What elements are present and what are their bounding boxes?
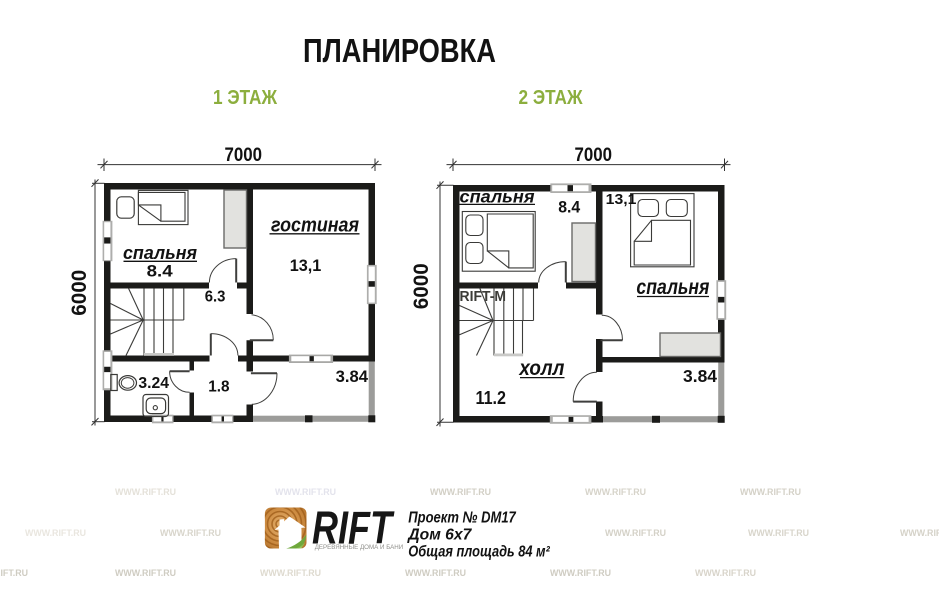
svg-text:WWW.RIFT.RU: WWW.RIFT.RU [115, 568, 176, 579]
svg-text:WWW.RIFT.RU: WWW.RIFT.RU [585, 487, 646, 498]
svg-text:WWW.RIFT.RU: WWW.RIFT.RU [430, 487, 491, 498]
svg-text:WWW.RIFT.RU: WWW.RIFT.RU [260, 568, 321, 579]
svg-text:7000: 7000 [225, 144, 263, 166]
svg-text:6000: 6000 [410, 263, 433, 309]
svg-text:1 ЭТАЖ: 1 ЭТАЖ [213, 87, 278, 109]
svg-text:WWW.RIFT.RU: WWW.RIFT.RU [605, 528, 666, 539]
svg-text:WWW.RIFT.RU: WWW.RIFT.RU [115, 487, 176, 498]
svg-text:6000: 6000 [68, 270, 91, 316]
svg-text:WWW.RIFT.RU: WWW.RIFT.RU [160, 528, 221, 539]
svg-text:WWW.RIFT.RU: WWW.RIFT.RU [25, 528, 86, 539]
svg-text:WWW.RIFT.RU: WWW.RIFT.RU [550, 568, 611, 579]
svg-text:спальня: спальня [460, 186, 535, 206]
svg-text:13,1: 13,1 [290, 256, 322, 275]
svg-text:7000: 7000 [575, 144, 613, 166]
svg-text:Дом 6х7: Дом 6х7 [406, 527, 472, 544]
svg-text:WWW.RIFT.RU: WWW.RIFT.RU [900, 528, 939, 539]
svg-text:WWW.RIFT.RU: WWW.RIFT.RU [740, 487, 801, 498]
svg-text:2 ЭТАЖ: 2 ЭТАЖ [519, 87, 584, 109]
svg-text:Проект № DM17: Проект № DM17 [408, 509, 516, 526]
svg-text:WWW.RIFT.RU: WWW.RIFT.RU [275, 487, 336, 498]
svg-text:ДЕРЕВЯННЫЕ ДОМА И БАНИ: ДЕРЕВЯННЫЕ ДОМА И БАНИ [315, 544, 404, 551]
svg-text:WWW.RIFT.RU: WWW.RIFT.RU [0, 568, 28, 579]
svg-text:8.4: 8.4 [147, 262, 174, 280]
svg-text:11.2: 11.2 [476, 388, 507, 408]
svg-text:спальня: спальня [123, 243, 197, 263]
svg-text:WWW.RIFT.RU: WWW.RIFT.RU [405, 568, 466, 579]
svg-text:Общая площадь 84 м²: Общая площадь 84 м² [408, 544, 550, 561]
svg-text:ПЛАНИРОВКА: ПЛАНИРОВКА [303, 32, 496, 69]
svg-text:WWW.RIFT.RU: WWW.RIFT.RU [748, 528, 809, 539]
svg-text:6.3: 6.3 [205, 288, 226, 305]
svg-text:3.24: 3.24 [138, 375, 169, 392]
svg-text:13,1: 13,1 [606, 192, 637, 208]
svg-text:холл: холл [519, 356, 565, 380]
svg-text:1.8: 1.8 [208, 379, 229, 396]
svg-text:WWW.RIFT.RU: WWW.RIFT.RU [695, 568, 756, 579]
svg-text:8.4: 8.4 [558, 197, 580, 216]
svg-text:3.84: 3.84 [683, 366, 717, 386]
svg-text:3.84: 3.84 [336, 368, 369, 386]
svg-text:спальня: спальня [636, 276, 709, 299]
svg-text:RIFT-M: RIFT-M [460, 288, 507, 305]
